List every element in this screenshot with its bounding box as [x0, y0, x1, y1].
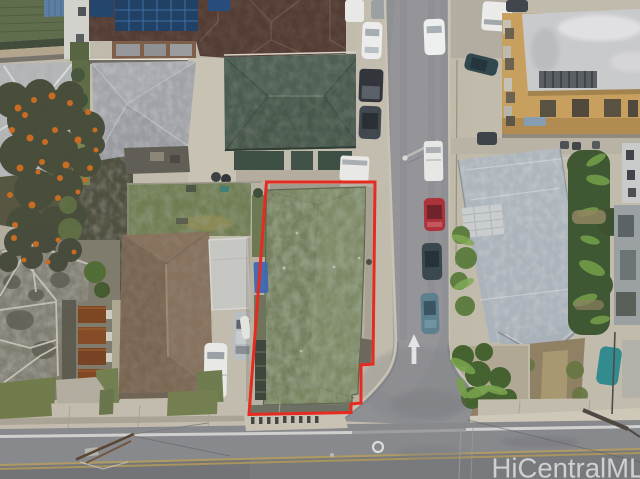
svg-text:HiCentralMLS: HiCentralMLS	[492, 453, 640, 479]
